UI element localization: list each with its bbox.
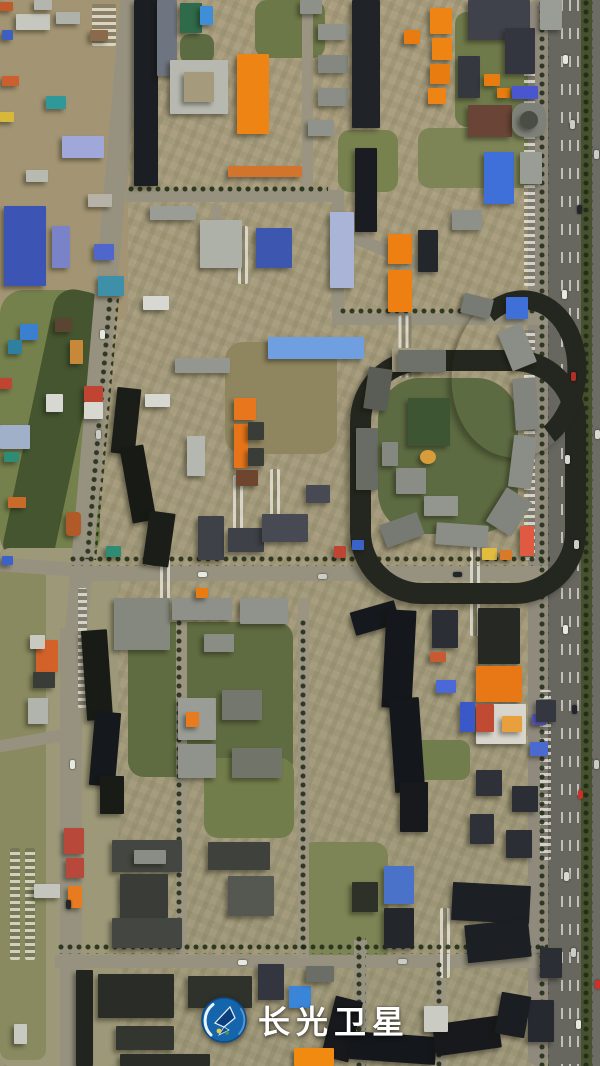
building	[76, 970, 93, 1066]
building	[512, 86, 538, 99]
car	[594, 760, 599, 769]
building	[52, 226, 70, 268]
car	[565, 455, 570, 464]
building	[306, 966, 334, 982]
building	[428, 88, 446, 104]
building	[435, 522, 488, 548]
building	[98, 974, 174, 1018]
building	[382, 442, 398, 466]
building	[200, 220, 242, 268]
building	[464, 919, 532, 963]
building	[56, 12, 80, 24]
building	[62, 136, 104, 158]
building	[66, 512, 81, 536]
building	[172, 598, 232, 620]
car	[564, 872, 569, 881]
car	[238, 960, 247, 965]
building	[430, 8, 452, 34]
building	[418, 230, 438, 272]
building	[530, 742, 548, 756]
car	[577, 205, 582, 214]
satellite-image: 长光卫星	[0, 0, 600, 1066]
building	[478, 608, 520, 664]
car	[574, 540, 579, 549]
building	[430, 652, 446, 662]
car	[66, 900, 71, 909]
building	[8, 340, 22, 354]
car	[563, 55, 568, 64]
building	[114, 598, 170, 650]
building	[432, 38, 452, 60]
building	[248, 448, 264, 466]
building	[420, 450, 436, 464]
building	[476, 666, 522, 702]
building	[262, 514, 308, 542]
building	[34, 0, 52, 10]
building	[256, 228, 292, 268]
building	[306, 485, 330, 503]
building	[228, 528, 264, 552]
building	[540, 948, 562, 978]
building	[8, 497, 26, 508]
building	[94, 244, 114, 260]
building	[436, 680, 456, 693]
building	[452, 210, 482, 230]
car	[570, 120, 575, 129]
building	[237, 54, 269, 134]
building	[222, 690, 262, 720]
parking-lot	[10, 848, 20, 960]
building	[175, 358, 230, 373]
building	[34, 884, 60, 898]
building	[106, 546, 121, 557]
building	[497, 88, 510, 98]
car	[70, 760, 75, 769]
building	[30, 635, 45, 649]
building	[100, 776, 124, 814]
building	[234, 398, 256, 420]
building	[46, 96, 66, 109]
building	[232, 748, 282, 778]
car	[594, 150, 599, 159]
building	[424, 496, 458, 516]
building	[506, 830, 532, 858]
building	[134, 0, 158, 186]
building	[98, 276, 124, 296]
road	[302, 0, 313, 190]
building	[400, 782, 428, 832]
building	[398, 350, 446, 372]
building	[495, 992, 532, 1039]
building	[184, 72, 214, 102]
building	[112, 918, 182, 948]
car	[578, 790, 583, 799]
car	[595, 980, 600, 989]
building	[294, 1048, 334, 1066]
building	[389, 697, 425, 793]
building	[4, 452, 19, 462]
building	[355, 148, 377, 232]
building	[26, 170, 48, 182]
building	[2, 556, 13, 565]
building	[470, 814, 494, 844]
building	[520, 152, 542, 184]
watermark-brand-text: 长光卫星	[258, 997, 410, 1043]
building	[352, 882, 378, 912]
building	[20, 324, 38, 340]
building	[318, 88, 348, 106]
watermark: 长光卫星	[200, 996, 410, 1044]
building	[356, 428, 378, 490]
car	[198, 572, 207, 577]
building	[476, 770, 502, 796]
building	[55, 318, 72, 332]
building	[4, 206, 46, 286]
building	[384, 866, 414, 904]
building	[381, 609, 416, 708]
car	[572, 705, 577, 714]
building	[500, 550, 512, 560]
building	[408, 398, 450, 446]
car	[571, 948, 576, 957]
tree-row	[300, 620, 309, 950]
building	[432, 610, 458, 648]
building	[0, 378, 12, 389]
building	[520, 111, 538, 129]
building	[484, 74, 500, 86]
car	[576, 1020, 581, 1029]
building	[187, 436, 205, 476]
building	[234, 424, 248, 468]
building	[120, 874, 168, 918]
building	[84, 402, 103, 419]
building	[46, 394, 63, 412]
car	[563, 625, 568, 634]
building	[404, 30, 420, 44]
building	[318, 24, 348, 40]
building	[2, 76, 19, 86]
building	[150, 206, 196, 220]
building	[512, 786, 538, 812]
building	[451, 882, 531, 924]
car	[398, 959, 407, 964]
building	[352, 540, 364, 550]
building	[143, 296, 169, 310]
building	[540, 0, 562, 30]
building	[196, 588, 208, 598]
parking-lot	[25, 848, 35, 960]
building	[90, 30, 108, 41]
building	[300, 0, 322, 14]
building	[248, 422, 264, 440]
building	[352, 0, 380, 128]
building	[430, 64, 450, 84]
building	[458, 56, 480, 98]
building	[482, 548, 497, 560]
building	[505, 28, 535, 74]
building	[88, 194, 112, 207]
tree-row	[176, 620, 185, 950]
building	[536, 700, 556, 722]
building	[16, 14, 50, 30]
car	[571, 372, 576, 381]
building	[2, 30, 13, 40]
car	[96, 430, 101, 439]
building	[0, 2, 13, 11]
road	[592, 0, 600, 1066]
building	[116, 1026, 174, 1050]
building	[208, 842, 270, 870]
building	[334, 546, 346, 558]
building	[476, 704, 494, 732]
building	[178, 744, 216, 778]
building	[228, 876, 274, 916]
building	[384, 908, 414, 948]
building	[258, 964, 284, 1000]
building	[502, 716, 522, 732]
building	[512, 377, 539, 430]
building	[204, 634, 234, 652]
car	[562, 290, 567, 299]
building	[70, 340, 83, 364]
building	[330, 212, 354, 288]
building	[388, 270, 412, 312]
building	[528, 1000, 554, 1042]
building	[198, 516, 224, 560]
car	[453, 572, 462, 577]
changguang-satellite-logo-icon	[200, 996, 248, 1044]
building	[424, 1006, 448, 1032]
building	[460, 702, 475, 732]
building	[268, 337, 364, 359]
building	[33, 672, 55, 688]
building	[64, 828, 84, 854]
building	[0, 425, 30, 449]
car	[100, 330, 105, 339]
building	[520, 526, 534, 556]
building	[318, 55, 348, 73]
building	[468, 105, 512, 137]
building	[0, 112, 14, 122]
building	[228, 166, 302, 177]
building	[84, 386, 103, 402]
parking-lot	[270, 469, 280, 515]
building	[236, 470, 258, 486]
car	[318, 574, 327, 579]
building	[506, 297, 528, 319]
building	[308, 120, 334, 136]
building	[388, 234, 412, 264]
building	[28, 698, 48, 724]
building	[484, 152, 514, 204]
building	[186, 712, 199, 727]
building	[200, 6, 213, 25]
building	[66, 858, 84, 878]
tree-row	[128, 186, 328, 194]
building	[145, 394, 170, 407]
building	[396, 468, 426, 494]
car	[595, 430, 600, 439]
building	[120, 1054, 210, 1066]
building	[240, 598, 288, 624]
building	[14, 1024, 27, 1044]
building	[134, 850, 166, 864]
building	[180, 3, 202, 33]
